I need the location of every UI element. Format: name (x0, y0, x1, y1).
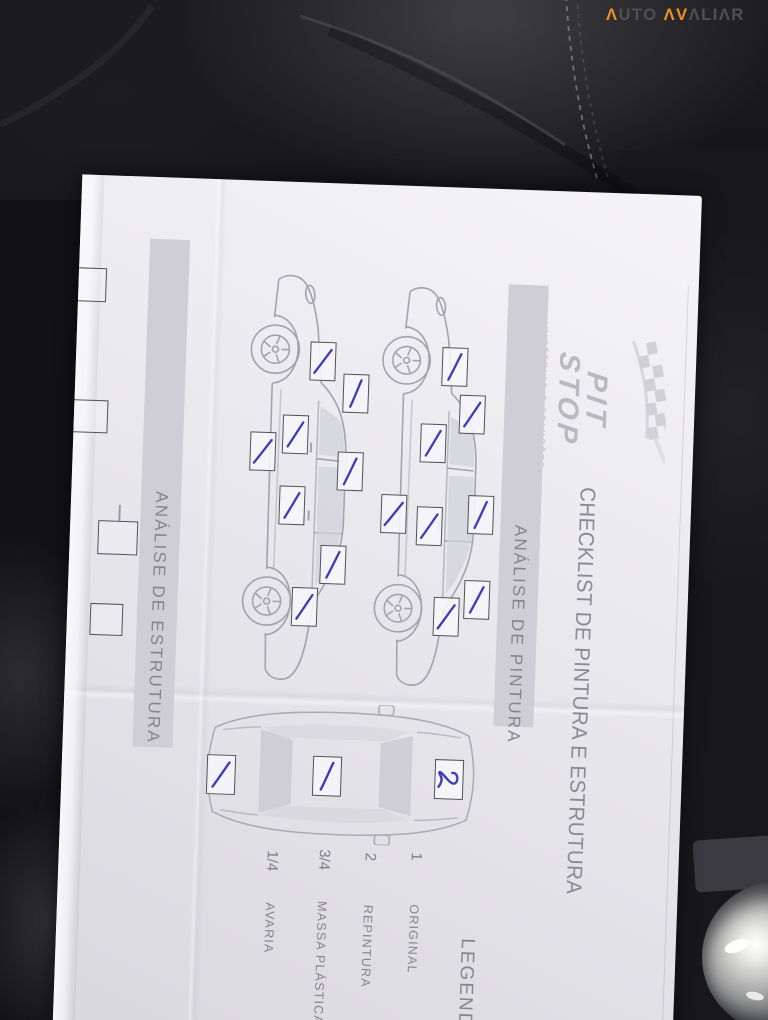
paint-checkbox-trunk-upper (463, 580, 490, 620)
paint-checkbox-rocker-upper (380, 494, 407, 534)
handwritten-mark-1 (320, 546, 345, 584)
handwritten-mark-1 (282, 415, 309, 454)
paint-checkbox-rear-door-lower (278, 485, 305, 525)
legend-label: ORIGINAL (405, 904, 421, 974)
brand-accent-a1: Λ (606, 6, 619, 24)
handwritten-mark-1 (206, 754, 237, 795)
brand-rest1: UTO (619, 6, 664, 24)
handwritten-mark-1 (442, 348, 467, 386)
section-structure-band: ANÁLISE DE ESTRUTURA (132, 239, 190, 748)
paint-checkbox-rear-door-upper (416, 506, 443, 546)
legend-row-massa-plastica: 3/4 MASSA PLÁSTICA/N (309, 849, 333, 1020)
handwritten-mark-1 (312, 756, 342, 796)
car-side-view-upper (366, 280, 506, 699)
photo-of-checklist: { "brand": { "a1": "Λ", "rest1": "UTO ",… (0, 0, 768, 1020)
document-title: CHECKLIST DE PINTURA E ESTRUTURA (561, 487, 600, 895)
auto-avaliar-logo: ΛUTO ΛVΛLIΛR (606, 6, 745, 25)
paint-checkbox-front-door-lower (282, 415, 309, 455)
legend-heading: LEGENDA (452, 938, 477, 1020)
paint-checkbox-roof-upper (467, 495, 494, 535)
legend-label: MASSA PLÁSTICA/N (310, 901, 329, 1020)
paint-checkbox-rear-fender-lower (291, 587, 318, 627)
structure-checkbox (97, 520, 138, 555)
legend-label: REPINTURA (358, 905, 375, 988)
paint-checkbox-rear-fender-upper (432, 597, 459, 637)
paint-checkbox-hood-topview (434, 759, 464, 800)
pit-stop-logo: PIT STOP VISTORIAS E SOLUÇÕES (536, 300, 671, 500)
checkered-flag-icon (612, 326, 669, 478)
legend-code: 1/4 (263, 850, 281, 889)
brand-rest2: ΛLIΛR (689, 6, 745, 24)
paint-checkbox-trunk-topview (206, 754, 236, 795)
structure-checkbox (74, 267, 107, 302)
paint-checkbox-front-fender-lower (309, 341, 336, 381)
handwritten-mark-1 (337, 452, 363, 490)
handwritten-mark-1 (467, 496, 494, 535)
handwritten-mark-1 (464, 581, 489, 618)
handwritten-mark-1 (342, 374, 370, 413)
paint-checkbox-hood-lower (342, 374, 369, 414)
legend-code: 2 (361, 853, 379, 892)
legend: LEGENDA 1 ORIGINAL 2 REPINTURA 3/4 MASSA… (165, 844, 481, 1020)
legend-code: 1 (407, 852, 425, 891)
paint-checkbox-trunk-lower (319, 545, 346, 585)
handwritten-mark-1 (291, 587, 318, 626)
section-structure-label: ANÁLISE DE ESTRUTURA (143, 491, 172, 744)
handwritten-mark-1 (379, 494, 409, 535)
legend-label: AVARIA (261, 902, 277, 954)
structure-connector-line (118, 505, 121, 521)
paint-checkbox-rocker-lower (249, 431, 276, 471)
handwritten-mark-1 (432, 597, 460, 637)
legend-row-avaria: 1/4 AVARIA (260, 850, 281, 954)
handwritten-mark-1 (415, 507, 443, 546)
paint-checkbox-roof-lower (337, 451, 364, 491)
handwritten-mark-1 (421, 424, 446, 462)
handwritten-mark-1 (309, 341, 338, 381)
paint-checkbox-hood-upper (459, 395, 486, 435)
section-paint-label: ANÁLISE DE PINTURA (503, 525, 531, 745)
handwritten-mark-1 (279, 486, 304, 524)
handwritten-mark-2 (435, 760, 463, 799)
brand-accent-av: ΛV (664, 6, 689, 24)
legend-row-original: 1 ORIGINAL (404, 852, 425, 974)
legend-row-repintura: 2 REPINTURA (357, 853, 379, 989)
paint-checkbox-front-fender-upper (441, 347, 468, 387)
paint-checkbox-roof-topview (312, 756, 342, 797)
legend-code: 3/4 (315, 849, 333, 888)
structure-checkbox (89, 603, 123, 636)
handwritten-mark-1 (248, 431, 277, 471)
structure-checkbox (69, 399, 108, 433)
paint-checkbox-front-door-upper (420, 423, 447, 463)
handwritten-mark-1 (459, 395, 486, 434)
checklist-sheet: PIT STOP VISTORIAS E SOLUÇÕES CHECKLIST … (53, 174, 702, 1020)
